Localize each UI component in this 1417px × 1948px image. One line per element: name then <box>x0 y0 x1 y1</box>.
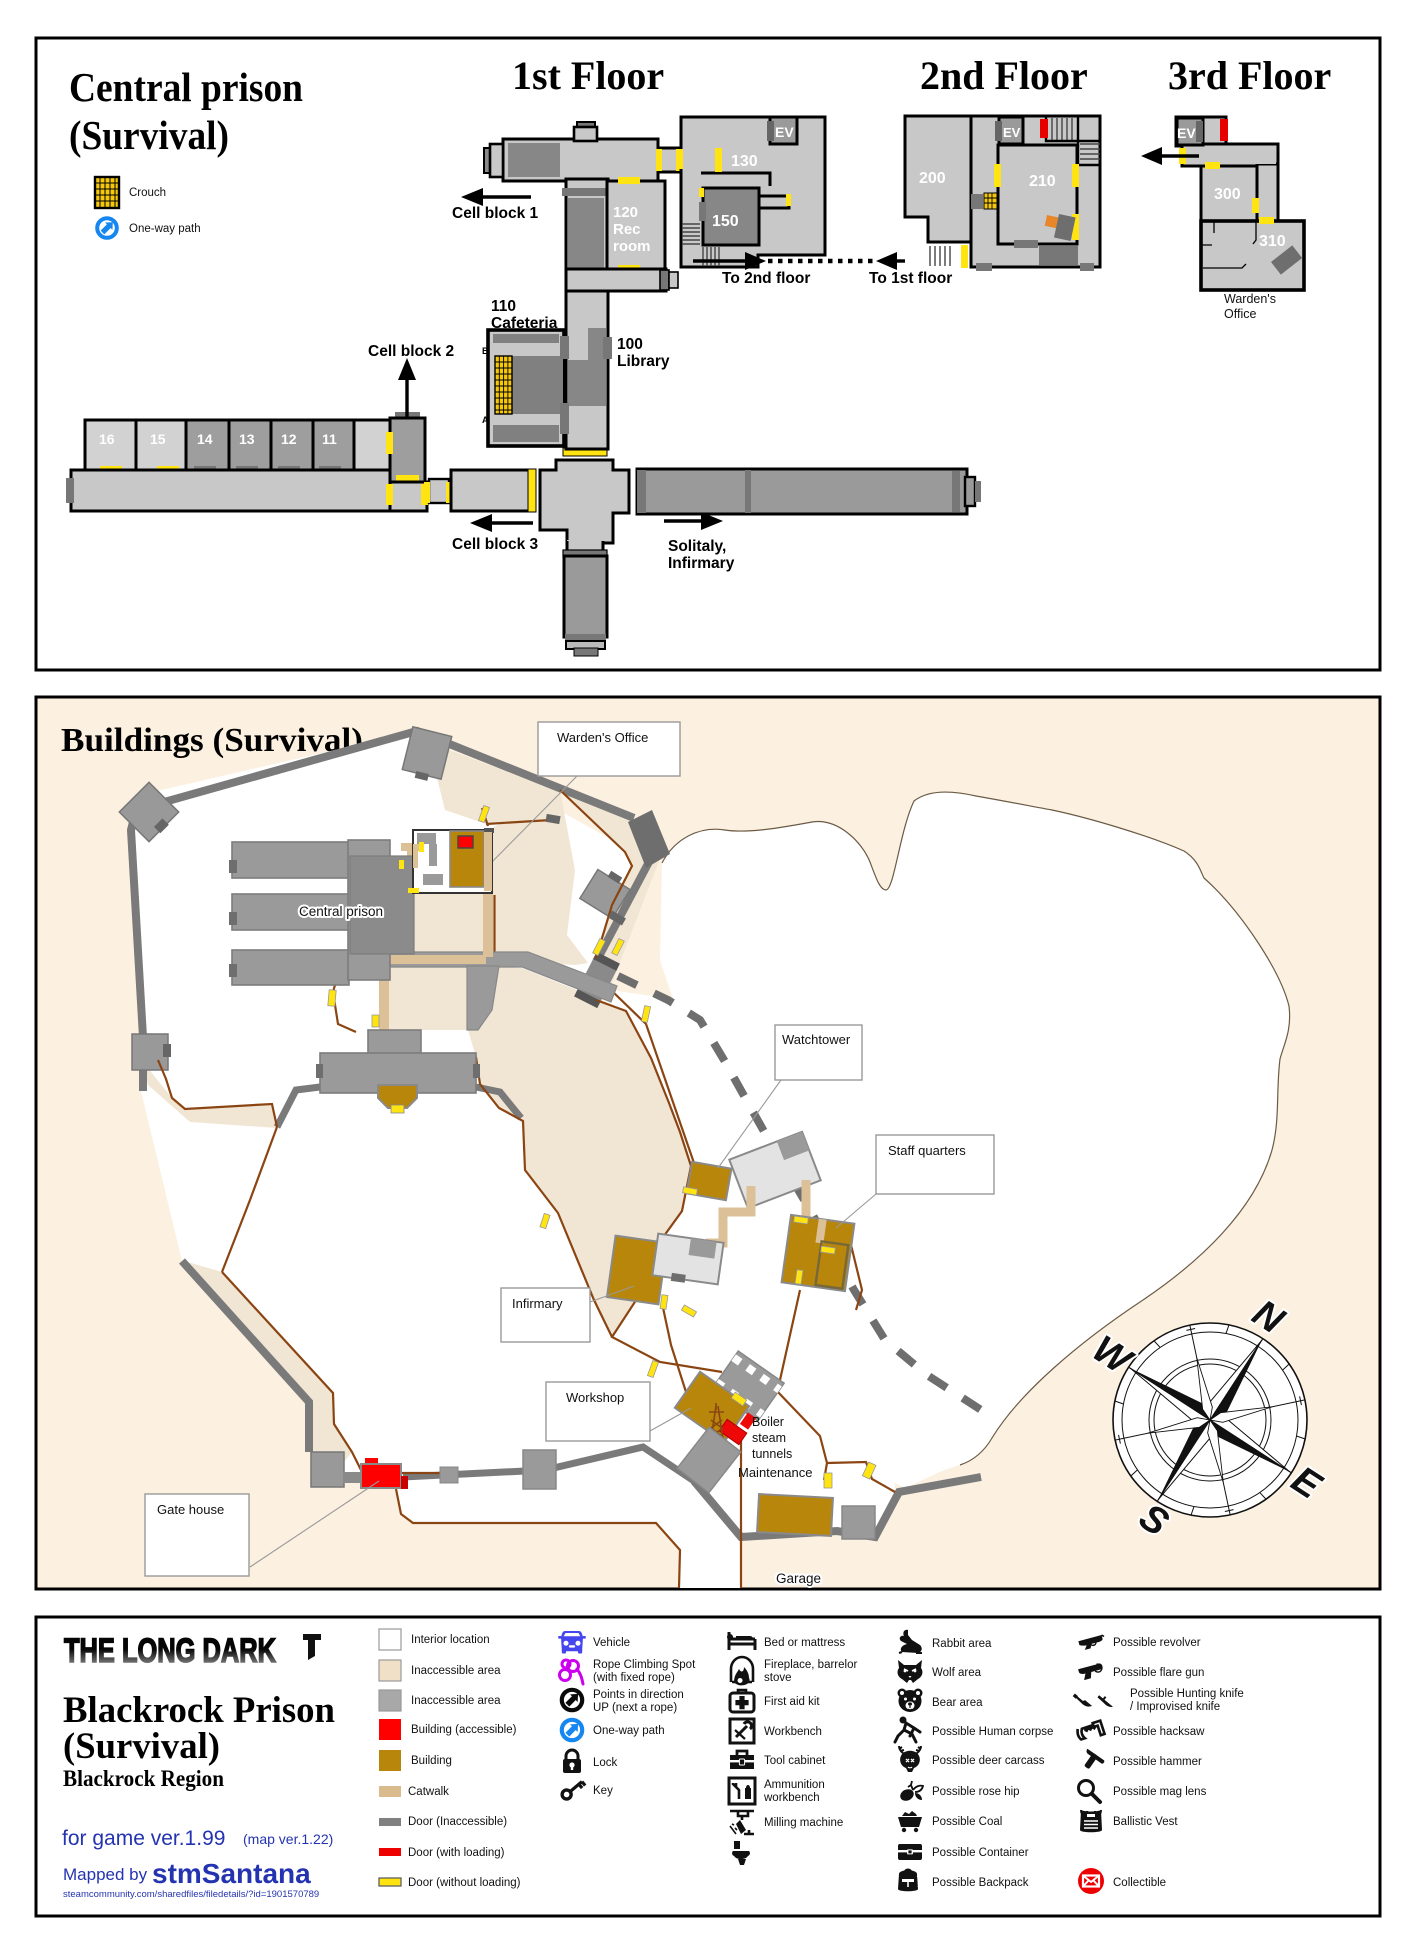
svg-text:for game ver.1.99: for game ver.1.99 <box>62 1827 225 1850</box>
svg-text:Bed or mattress: Bed or mattress <box>764 1637 845 1649</box>
svg-text:Buildings (Survival): Buildings (Survival) <box>61 722 363 759</box>
svg-text:Gate house: Gate house <box>157 1502 224 1517</box>
svg-text:Building: Building <box>411 1755 452 1767</box>
svg-text:14: 14 <box>197 431 213 447</box>
svg-text:Infirmary: Infirmary <box>512 1296 563 1311</box>
svg-text:(Survival): (Survival) <box>63 1726 220 1767</box>
svg-text:Mapped by: Mapped by <box>63 1865 148 1884</box>
svg-text:One-way path: One-way path <box>593 1725 665 1737</box>
svg-text:(Survival): (Survival) <box>69 112 229 158</box>
svg-text:Infirmary: Infirmary <box>668 555 735 572</box>
svg-text:110: 110 <box>491 298 516 315</box>
svg-text:EV: EV <box>1177 125 1196 141</box>
svg-text:Ammunition: Ammunition <box>764 1779 825 1791</box>
svg-text:Tool cabinet: Tool cabinet <box>764 1755 826 1767</box>
svg-text:B: B <box>482 346 489 356</box>
svg-text:Possible revolver: Possible revolver <box>1113 1637 1201 1649</box>
svg-text:200: 200 <box>919 170 946 187</box>
svg-text:stove: stove <box>764 1672 792 1684</box>
svg-text:Cell block 2: Cell block 2 <box>368 343 454 360</box>
svg-text:THE LONG DARK: THE LONG DARK <box>64 1632 276 1670</box>
svg-text:workbench: workbench <box>763 1792 820 1804</box>
svg-text:steamcommunity.com/sharedfiles: steamcommunity.com/sharedfiles/filedetai… <box>63 1889 319 1900</box>
svg-text:(with fixed rope): (with fixed rope) <box>593 1672 675 1684</box>
svg-text:Cell block 3: Cell block 3 <box>452 536 539 553</box>
svg-text:Possible Backpack: Possible Backpack <box>932 1877 1029 1889</box>
svg-text:/ Improvised knife: / Improvised knife <box>1130 1701 1220 1713</box>
svg-text:Inaccessible area: Inaccessible area <box>411 1665 501 1677</box>
svg-text:15: 15 <box>150 431 166 447</box>
svg-text:Inaccessible area: Inaccessible area <box>411 1695 501 1707</box>
svg-text:Key: Key <box>593 1785 613 1797</box>
svg-text:UP (next a rope): UP (next a rope) <box>593 1702 677 1714</box>
svg-text:Vehicle: Vehicle <box>593 1637 630 1649</box>
svg-text:Possible hacksaw: Possible hacksaw <box>1113 1726 1205 1738</box>
svg-text:First aid kit: First aid kit <box>764 1696 820 1708</box>
svg-text:Library: Library <box>617 353 670 370</box>
svg-text:Crouch: Crouch <box>129 187 166 199</box>
svg-text:Milling machine: Milling machine <box>764 1817 843 1829</box>
svg-text:300: 300 <box>1214 186 1241 203</box>
svg-text:Office: Office <box>1224 307 1256 321</box>
svg-text:12: 12 <box>281 431 297 447</box>
svg-text:Catwalk: Catwalk <box>408 1786 449 1798</box>
svg-text:Solitaly,: Solitaly, <box>668 538 726 555</box>
svg-text:Fireplace, barrelor: Fireplace, barrelor <box>764 1659 857 1671</box>
svg-text:150: 150 <box>712 213 739 230</box>
svg-text:Warden's Office: Warden's Office <box>557 730 648 745</box>
svg-text:130: 130 <box>731 153 758 170</box>
svg-text:120: 120 <box>613 204 638 221</box>
svg-text:Watchtower: Watchtower <box>782 1032 851 1047</box>
svg-text:Possible hammer: Possible hammer <box>1113 1756 1202 1768</box>
svg-text:Possible deer carcass: Possible deer carcass <box>932 1755 1045 1767</box>
svg-text:Wolf area: Wolf area <box>932 1667 982 1679</box>
svg-text:Possible flare gun: Possible flare gun <box>1113 1667 1204 1679</box>
svg-text:Rabbit area: Rabbit area <box>932 1638 992 1650</box>
svg-text:210: 210 <box>1029 173 1056 190</box>
svg-text:1st Floor: 1st Floor <box>512 53 664 98</box>
svg-text:steam: steam <box>752 1431 786 1445</box>
svg-text:EV: EV <box>1003 125 1021 140</box>
svg-text:16: 16 <box>99 431 115 447</box>
svg-text:Blackrock Region: Blackrock Region <box>63 1766 224 1791</box>
svg-text:Blackrock Prison: Blackrock Prison <box>63 1690 335 1731</box>
svg-text:Collectible: Collectible <box>1113 1877 1166 1889</box>
svg-text:Possible Container: Possible Container <box>932 1847 1029 1859</box>
svg-text:Warden's: Warden's <box>1224 292 1276 306</box>
svg-text:11: 11 <box>322 431 337 447</box>
svg-text:stmSantana: stmSantana <box>152 1858 311 1889</box>
svg-text:Maintenance: Maintenance <box>738 1465 812 1480</box>
svg-text:EV: EV <box>775 124 794 140</box>
svg-text:To 1st floor: To 1st floor <box>869 270 952 287</box>
svg-text:One-way path: One-way path <box>129 223 201 235</box>
svg-text:Ballistic Vest: Ballistic Vest <box>1113 1816 1178 1828</box>
svg-text:Lock: Lock <box>593 1757 618 1769</box>
svg-text:Points in direction: Points in direction <box>593 1689 684 1701</box>
svg-text:tunnels: tunnels <box>752 1447 792 1461</box>
svg-text:Possible mag lens: Possible mag lens <box>1113 1786 1207 1798</box>
svg-text:Building (accessible): Building (accessible) <box>411 1724 517 1736</box>
svg-text:2nd Floor: 2nd Floor <box>920 53 1088 98</box>
svg-text:Possible Hunting knife: Possible Hunting knife <box>1130 1688 1244 1700</box>
svg-text:Possible rose hip: Possible rose hip <box>932 1786 1020 1798</box>
svg-text:310: 310 <box>1259 233 1286 250</box>
svg-text:(map ver.1.22): (map ver.1.22) <box>243 1831 333 1847</box>
svg-text:Central prison: Central prison <box>299 904 383 919</box>
svg-text:Cell block 1: Cell block 1 <box>452 205 539 222</box>
svg-text:100: 100 <box>617 336 643 353</box>
svg-text:Rec: Rec <box>613 221 641 238</box>
svg-text:Boiler: Boiler <box>752 1415 784 1429</box>
svg-text:Workshop: Workshop <box>566 1390 624 1405</box>
svg-text:Possible Human corpse: Possible Human corpse <box>932 1726 1053 1738</box>
svg-text:Interior location: Interior location <box>411 1634 490 1646</box>
svg-text:room: room <box>613 238 651 255</box>
svg-text:3rd Floor: 3rd Floor <box>1168 53 1331 98</box>
svg-text:A: A <box>482 415 489 425</box>
svg-text:Workbench: Workbench <box>764 1726 822 1738</box>
svg-text:Door (Inaccessible): Door (Inaccessible) <box>408 1816 507 1828</box>
svg-text:Staff quarters: Staff quarters <box>888 1143 966 1158</box>
svg-text:To 2nd floor: To 2nd floor <box>722 270 810 287</box>
svg-text:Possible Coal: Possible Coal <box>932 1816 1002 1828</box>
svg-text:Central prison: Central prison <box>69 64 303 110</box>
svg-text:Door (with loading): Door (with loading) <box>408 1847 505 1859</box>
svg-text:13: 13 <box>239 431 255 447</box>
svg-text:Bear area: Bear area <box>932 1697 983 1709</box>
svg-text:Rope Climbing Spot: Rope Climbing Spot <box>593 1659 696 1671</box>
svg-text:Garage: Garage <box>776 1571 821 1586</box>
svg-text:Door (without loading): Door (without loading) <box>408 1877 521 1889</box>
